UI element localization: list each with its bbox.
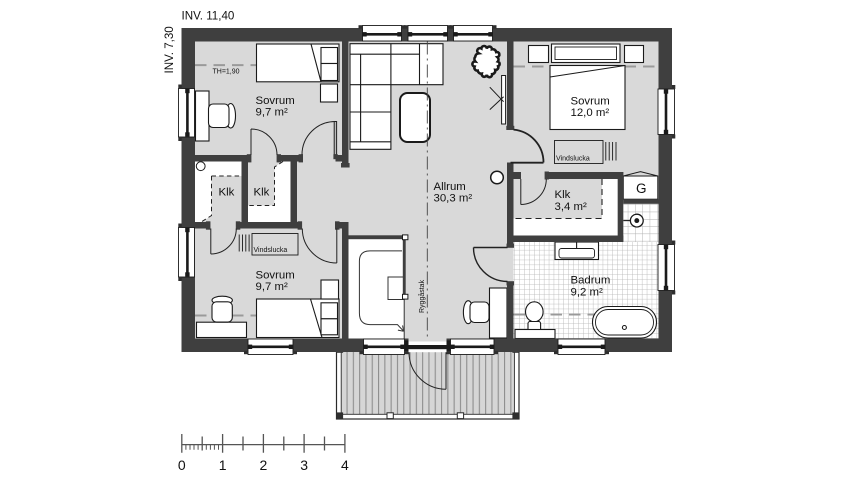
svg-text:Vindslucka: Vindslucka [254,247,288,254]
svg-text:3: 3 [300,457,308,473]
svg-text:3,4 m²: 3,4 m² [555,201,587,213]
svg-text:9,2 m²: 9,2 m² [571,286,603,298]
svg-text:Sovrum: Sovrum [256,270,295,282]
svg-text:Klk: Klk [254,187,270,199]
svg-text:9,7 m²: 9,7 m² [256,281,288,293]
svg-text:9,7 m²: 9,7 m² [256,107,288,119]
svg-text:Ryggåstak: Ryggåstak [418,279,426,313]
svg-text:12,0 m²: 12,0 m² [571,107,610,119]
svg-text:30,3 m²: 30,3 m² [434,193,473,205]
svg-text:INV. 7,30: INV. 7,30 [163,26,176,73]
svg-text:Vindslucka: Vindslucka [556,156,590,163]
svg-text:Allrum: Allrum [434,181,466,193]
svg-text:Sovrum: Sovrum [571,95,610,107]
svg-text:INV. 11,40: INV. 11,40 [182,9,235,22]
svg-text:Klk: Klk [219,187,235,199]
svg-text:4: 4 [341,457,349,473]
svg-text:1: 1 [219,457,227,473]
svg-text:0: 0 [178,457,186,473]
svg-text:G: G [636,181,647,196]
svg-text:Klk: Klk [555,189,571,201]
svg-text:Sovrum: Sovrum [256,95,295,107]
svg-text:TH=1,90: TH=1,90 [213,69,240,76]
svg-text:Badrum: Badrum [571,275,611,287]
svg-text:2: 2 [260,457,268,473]
